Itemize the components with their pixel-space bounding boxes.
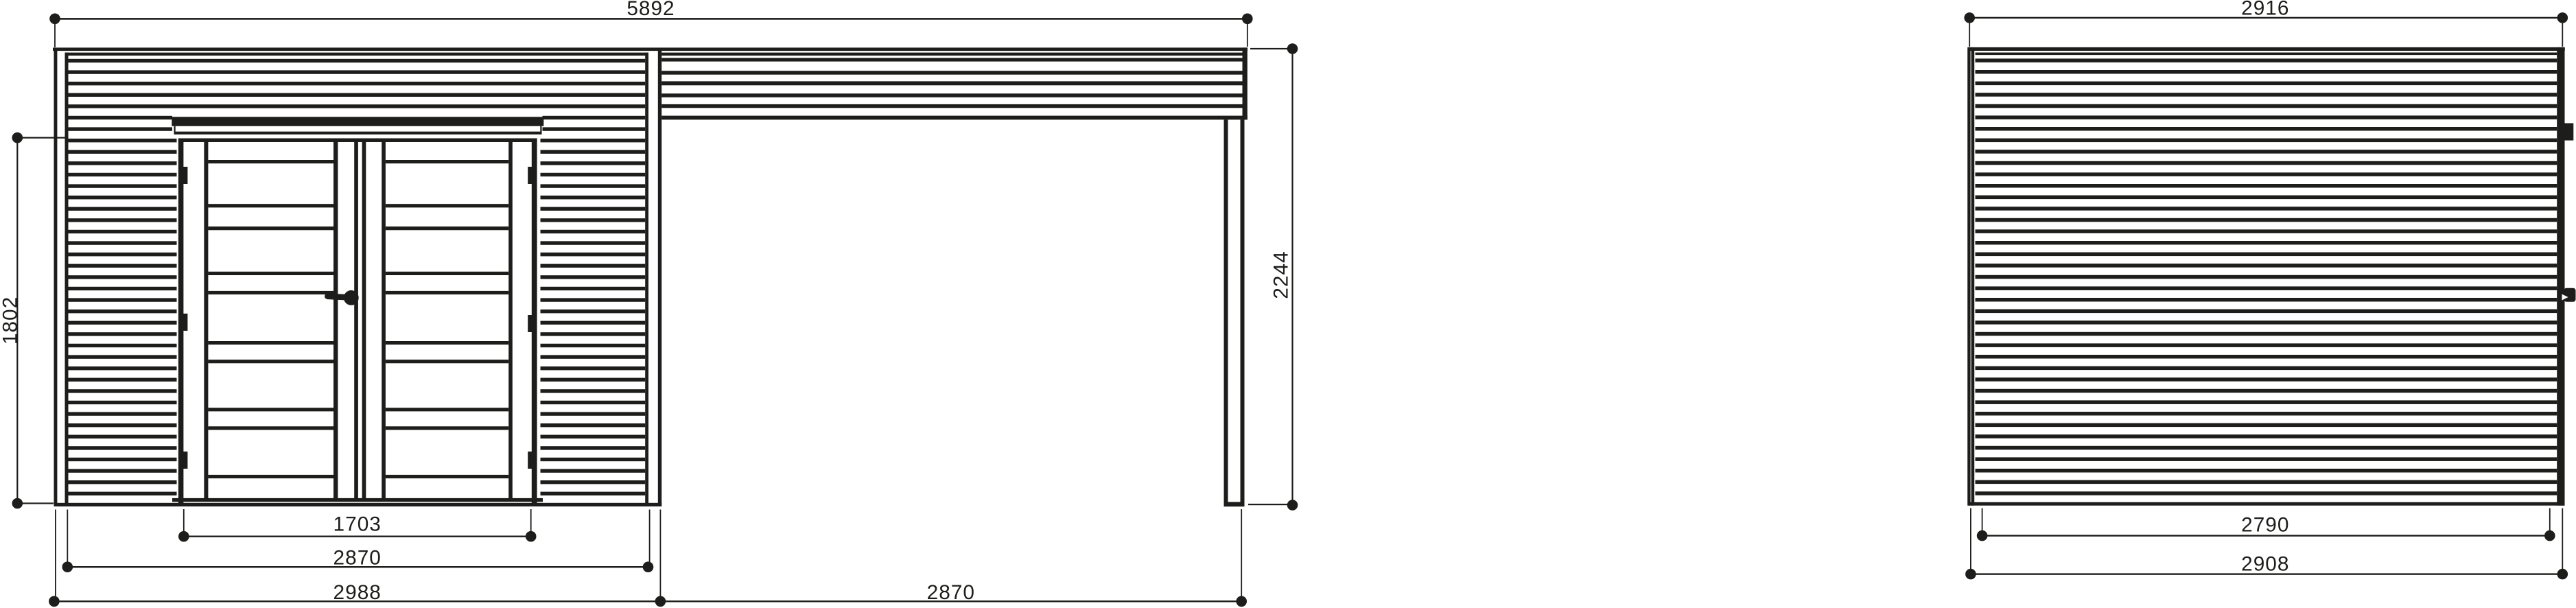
svg-text:2916: 2916	[2241, 0, 2289, 20]
svg-text:2244: 2244	[1269, 250, 1292, 299]
svg-text:5892: 5892	[627, 0, 675, 20]
svg-text:2790: 2790	[2241, 514, 2289, 537]
svg-text:2988: 2988	[333, 581, 382, 604]
svg-text:2870: 2870	[927, 581, 975, 604]
svg-text:1802: 1802	[0, 296, 22, 344]
svg-text:1703: 1703	[333, 513, 382, 535]
svg-text:2870: 2870	[333, 546, 382, 569]
svg-text:2908: 2908	[2241, 552, 2289, 575]
